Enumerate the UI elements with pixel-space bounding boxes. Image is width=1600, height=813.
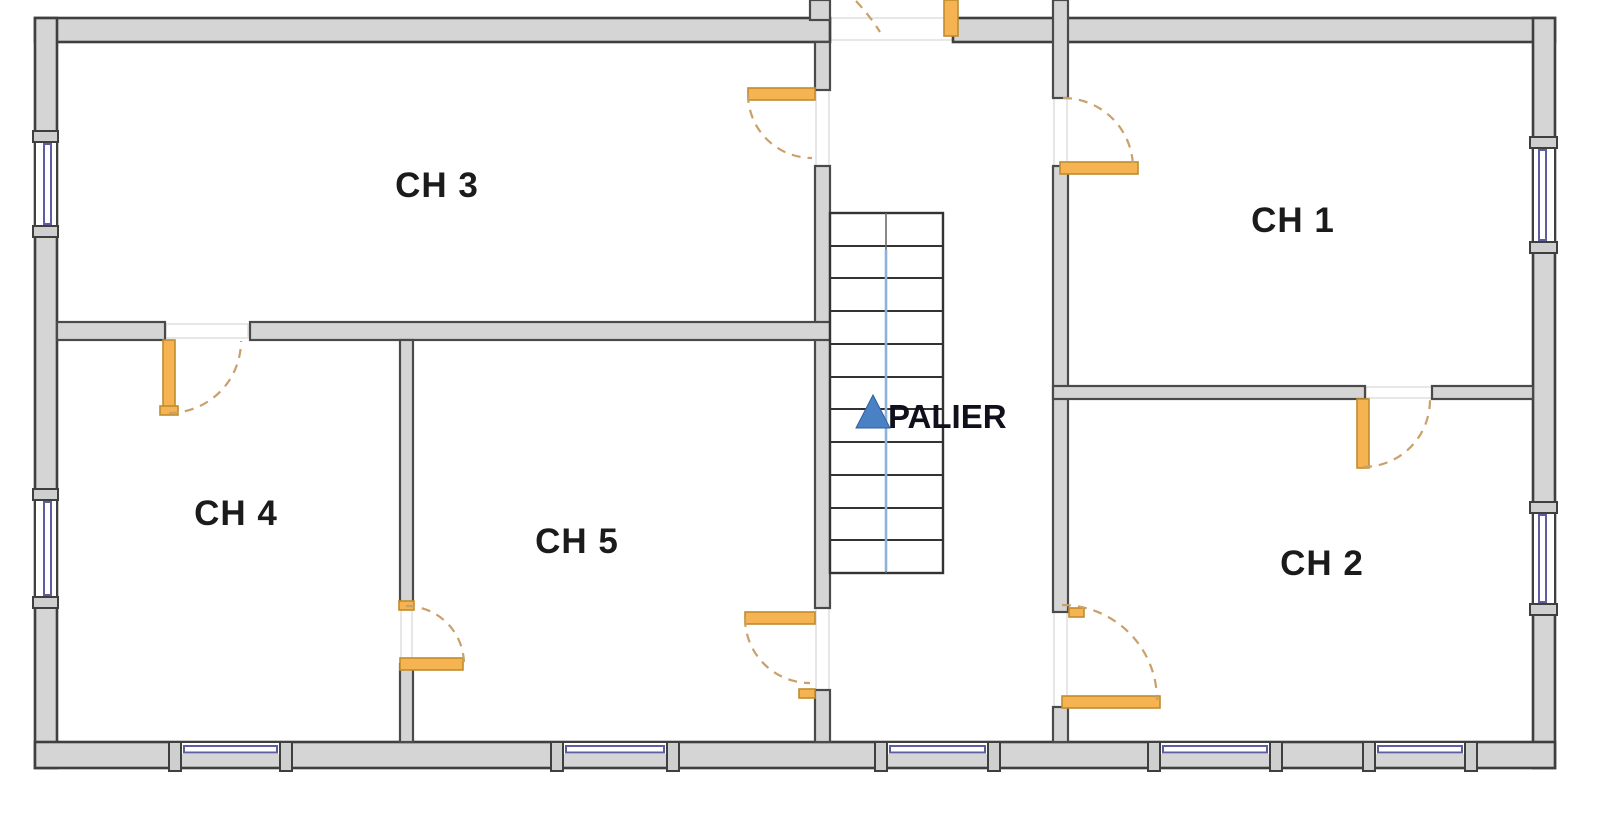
door-panel: [1062, 696, 1160, 708]
window-ch2-right: [1534, 511, 1554, 606]
room-label-palier: PALIER: [888, 398, 1007, 435]
window-ch3-left: [36, 140, 56, 228]
window-jamb: [1530, 604, 1557, 615]
wall-ch3-bottom-b: [250, 322, 830, 340]
door-frame: [1054, 98, 1067, 166]
wall-corridor-stub-top-left: [810, 0, 830, 20]
window-ch4-left: [36, 498, 56, 599]
window-jamb: [33, 489, 58, 500]
wall-corridor-left-b: [815, 166, 830, 608]
window-jamb: [1530, 137, 1557, 148]
door-panel: [944, 0, 958, 36]
window-jamb: [1530, 502, 1557, 513]
door-frame: [816, 608, 829, 690]
door-frame: [816, 90, 829, 166]
door-panel: [748, 88, 815, 100]
room-label-ch3: CH 3: [395, 166, 479, 205]
door-frame: [401, 603, 412, 664]
window-jamb: [1530, 242, 1557, 253]
door-frame: [1054, 612, 1067, 707]
wall-ch1-ch2-a: [1053, 386, 1365, 399]
floor-plan-drawing: CH 3 CH 4 CH 5 CH 1 CH 2 PALIER: [0, 0, 1600, 813]
door-panel: [163, 340, 175, 410]
wall-ch3-bottom-a: [57, 322, 165, 340]
door-panel: [400, 658, 463, 670]
wall-corridor-left-c: [815, 690, 830, 742]
wall-right: [1533, 18, 1555, 768]
wall-ch4-ch5-b: [400, 664, 413, 742]
door-panel: [745, 612, 815, 624]
window-jamb: [33, 131, 58, 142]
room-label-ch2: CH 2: [1280, 544, 1364, 583]
room-label-ch4: CH 4: [194, 494, 278, 533]
door-frame: [831, 18, 952, 40]
wall-corridor-right-a: [1053, 0, 1068, 98]
room-label-ch1: CH 1: [1251, 201, 1335, 240]
wall-ch4-ch5-a: [400, 340, 413, 603]
floor-plan-canvas: CH 3 CH 4 CH 5 CH 1 CH 2 PALIER: [0, 0, 1600, 813]
wall-ch1-ch2-b: [1432, 386, 1533, 399]
wall-corridor-left-a: [815, 42, 830, 90]
window-jamb: [33, 226, 58, 237]
staircase: [830, 213, 943, 573]
wall-corridor-right-c: [1053, 707, 1068, 742]
room-label-ch5: CH 5: [535, 522, 619, 561]
window-jamb: [33, 597, 58, 608]
door-frame: [166, 324, 248, 338]
door-panel: [1060, 162, 1138, 174]
wall-top-left: [35, 18, 830, 42]
door-panel: [1357, 399, 1369, 468]
wall-top-right: [953, 18, 1555, 42]
window-ch1-right: [1534, 146, 1554, 244]
door-jamb-cap: [1069, 608, 1084, 617]
door-frame: [1366, 387, 1432, 398]
door-jamb-cap: [799, 689, 815, 698]
